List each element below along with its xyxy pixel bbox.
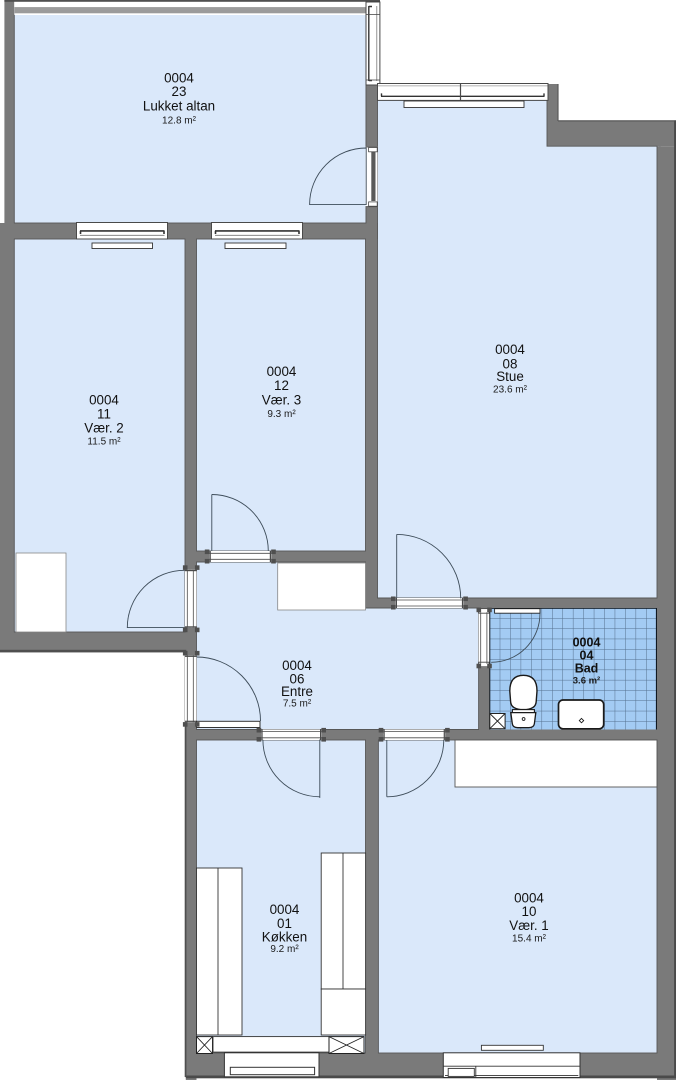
svg-text:10: 10 <box>522 904 537 919</box>
svg-text:11.5 m²: 11.5 m² <box>87 437 121 448</box>
svg-text:7.5 m²: 7.5 m² <box>283 699 312 710</box>
svg-text:0004: 0004 <box>270 902 300 917</box>
svg-text:9.2 m²: 9.2 m² <box>270 944 299 955</box>
svg-text:23.6 m²: 23.6 m² <box>493 385 528 396</box>
svg-text:12.8 m²: 12.8 m² <box>162 116 197 127</box>
svg-text:3.6 m²: 3.6 m² <box>573 676 600 687</box>
svg-text:04: 04 <box>580 649 594 663</box>
svg-text:15.4 m²: 15.4 m² <box>512 934 547 945</box>
svg-text:11: 11 <box>97 406 111 421</box>
svg-text:0004: 0004 <box>267 364 297 379</box>
svg-text:Bad: Bad <box>575 662 599 676</box>
svg-text:Køkken: Køkken <box>262 930 307 945</box>
svg-text:0004: 0004 <box>89 392 119 407</box>
svg-text:Stue: Stue <box>496 369 524 384</box>
svg-text:Entre: Entre <box>281 684 313 699</box>
svg-text:Vær. 3: Vær. 3 <box>262 392 301 407</box>
svg-text:Vær. 2: Vær. 2 <box>84 420 123 435</box>
svg-text:9.3 m²: 9.3 m² <box>267 409 296 420</box>
svg-text:Lukket altan: Lukket altan <box>143 98 215 113</box>
svg-text:Vær. 1: Vær. 1 <box>509 918 548 933</box>
svg-text:0004: 0004 <box>495 342 525 357</box>
svg-text:0004: 0004 <box>573 636 601 650</box>
svg-text:23: 23 <box>172 84 187 99</box>
svg-text:12: 12 <box>274 378 289 393</box>
